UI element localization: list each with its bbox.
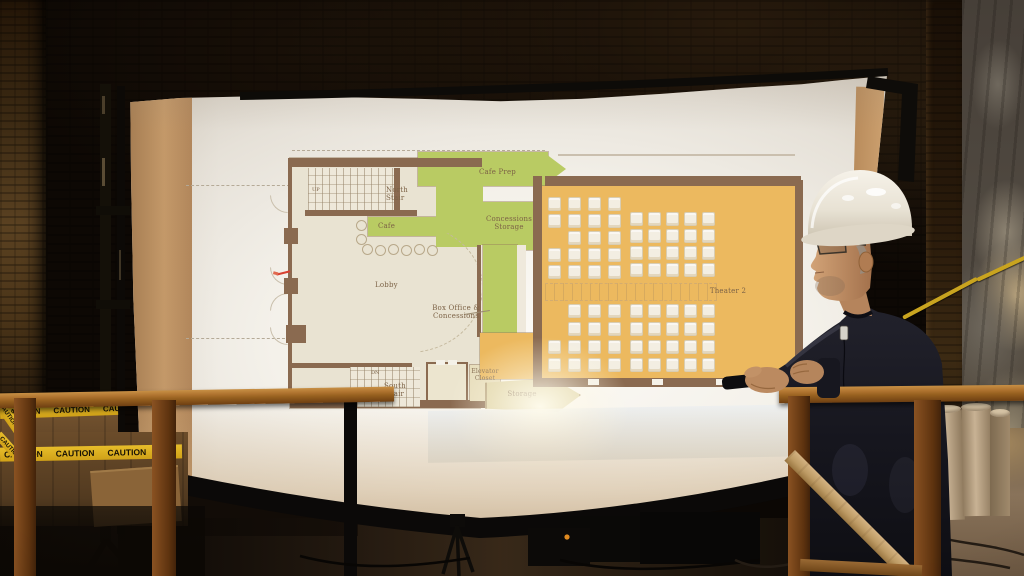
presenter-hands [695, 350, 840, 405]
hat-specular [842, 195, 854, 201]
truss-sheen [102, 158, 105, 186]
screen-center-support [344, 398, 357, 576]
projector-box [528, 528, 590, 566]
stubble [815, 276, 845, 296]
construction-site-presentation-photo: North Stair Cafe Cafe Prep Concessions S… [0, 0, 1024, 576]
hat-specular [891, 203, 901, 209]
tripod-head [450, 514, 465, 527]
truss-crossbar [96, 206, 130, 215]
railing-post [14, 398, 36, 576]
truss-sheen [119, 250, 121, 280]
truss-crossbar [96, 300, 130, 309]
screen-frame-top [240, 72, 888, 96]
trouser-sheen [832, 444, 868, 496]
railing-post [914, 400, 941, 576]
caution-text: CAUTION [56, 448, 95, 459]
truss-sheen [102, 96, 105, 114]
railing-post [788, 396, 810, 576]
railing-post [152, 400, 176, 576]
hat-specular [866, 188, 886, 196]
lavalier-microphone [840, 326, 848, 340]
ear [859, 252, 873, 272]
caution-text: CAUTION [107, 447, 146, 458]
power-led [564, 534, 569, 539]
